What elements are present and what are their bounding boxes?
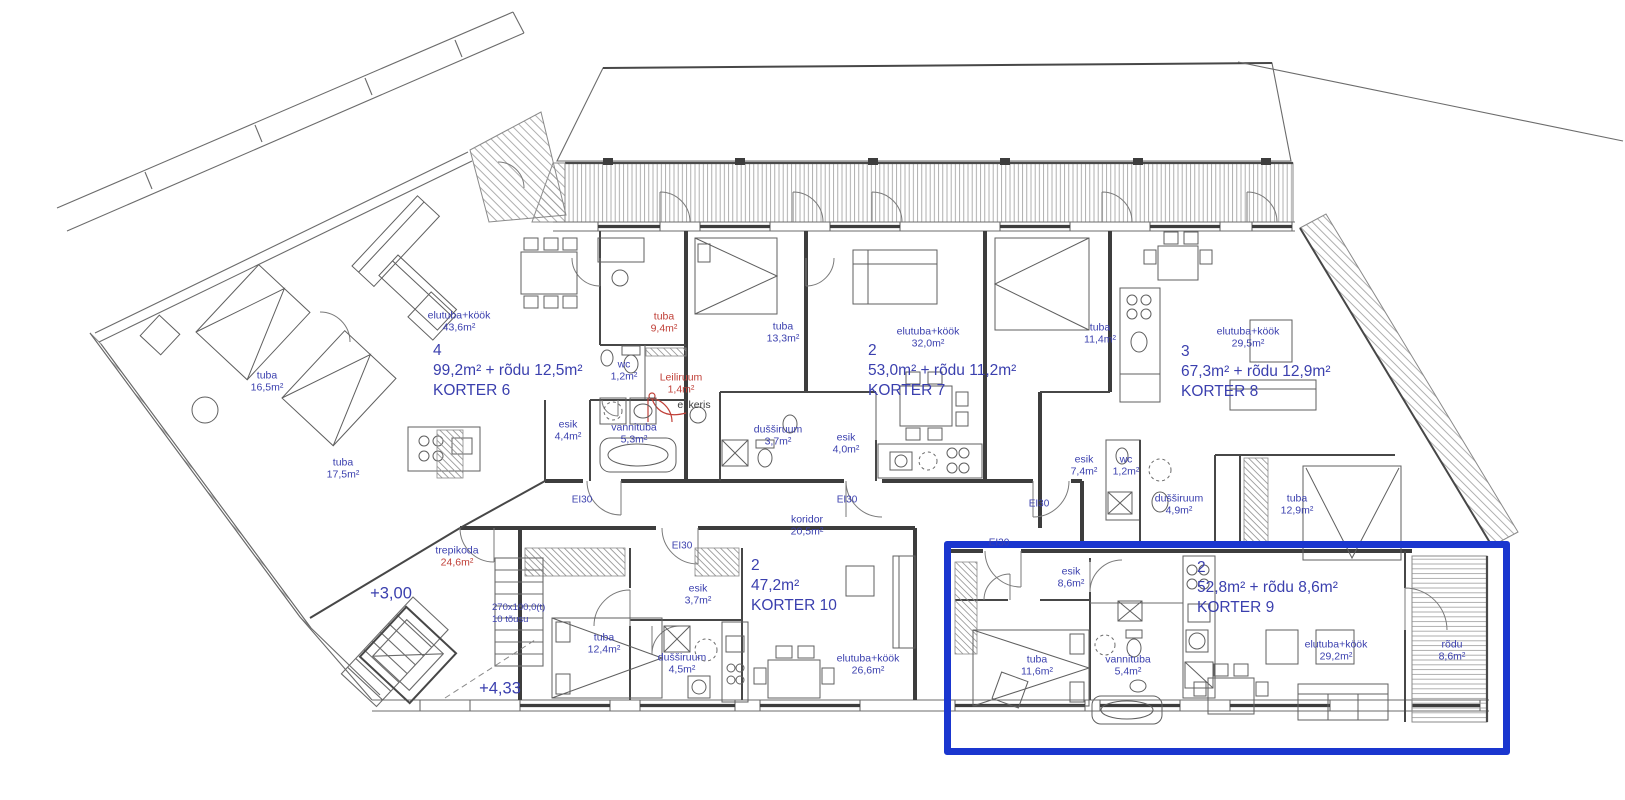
room-label: tuba12,4m² (588, 632, 621, 657)
dining-table-icon (521, 238, 577, 308)
corner-terrace (470, 112, 566, 222)
room-label: Leiliruum1,4m² (660, 372, 703, 397)
room-label: tuba11,6m² (1021, 654, 1053, 679)
room-label: trepikoda24,6m² (435, 545, 478, 570)
stair-note: 270x100,0(t)10 tõusu (492, 602, 545, 626)
apartment-label-korter-9: 252,8m² + rõdu 8,6m²KORTER 9 (1197, 558, 1338, 617)
room-label: esik4,0m² (833, 432, 860, 457)
bed-icon (695, 238, 777, 314)
room-label: dušširuum3,7m² (754, 424, 802, 449)
armchair-icon (846, 566, 874, 596)
room-label: tuba12,9m² (1281, 493, 1314, 518)
floor-plan-page: elutuba+köök43,6m²tuba16,5m²tuba17,5m²tu… (0, 0, 1625, 800)
table-icon (192, 397, 218, 423)
dining-table-icon (754, 646, 834, 698)
room-label: tuba13,3m² (767, 321, 800, 346)
dining-table-icon (1144, 232, 1212, 280)
fire-rating-label: EI30 (572, 495, 593, 506)
fire-rating-label: EI30 (837, 495, 858, 506)
desk-icon (598, 238, 644, 262)
room-label: wc1,2m² (1113, 454, 1140, 479)
room-label: vannituba5,4m² (1105, 654, 1151, 679)
level-label: +3,00 (370, 585, 412, 604)
furniture-korter6 (140, 196, 676, 478)
bed-icon (196, 265, 310, 380)
room-label: koridor20,5m² (791, 514, 824, 539)
fire-rating-label: EI30 (1029, 499, 1050, 510)
apartment-label-korter-10: 247,2m²KORTER 10 (751, 556, 837, 615)
room-label: tuba17,5m² (327, 457, 360, 482)
room-label: el keris (677, 399, 710, 411)
sofa-icon (893, 556, 915, 648)
elevator (360, 607, 456, 703)
kitchen-counter (722, 622, 748, 702)
sofa-icon (853, 250, 937, 304)
room-label: vannituba5,3m² (611, 422, 657, 447)
room-label: tuba9,4m² (651, 311, 678, 336)
bed-icon (282, 331, 396, 446)
room-label: wc1,2m² (611, 359, 638, 384)
room-label: rõdu8,6m² (1439, 639, 1466, 664)
level-label: +4,33 (479, 680, 521, 699)
apartment-label-korter-6: 499,2m² + rõdu 12,5m²KORTER 6 (433, 341, 582, 400)
bed-icon (552, 618, 662, 698)
fire-rating-label: EI30 (672, 541, 693, 552)
room-label: elutuba+köök43,6m² (428, 310, 491, 335)
room-label: dušširuum4,5m² (658, 652, 706, 677)
bed-icon (995, 238, 1089, 330)
fire-rating-label: EI30 (989, 538, 1010, 549)
room-label: dušširuum4,9m² (1155, 493, 1203, 518)
room-label: esik7,4m² (1071, 454, 1098, 479)
room-label: esik8,6m² (1058, 566, 1085, 591)
room-label: elutuba+köök29,2m² (1305, 639, 1368, 664)
top-balcony (532, 158, 1293, 222)
room-label: esik4,4m² (555, 419, 582, 444)
apartment-label-korter-7: 253,0m² + rõdu 11,2m²KORTER 7 (868, 341, 1016, 400)
room-label: tuba11,4m² (1084, 322, 1116, 347)
room-label: elutuba+köök26,6m² (837, 653, 900, 678)
furniture-korter10 (552, 556, 915, 702)
apartment-label-korter-8: 367,3m² + rõdu 12,9m²KORTER 8 (1181, 342, 1330, 401)
kitchen-counter (1120, 288, 1160, 402)
room-label: tuba16,5m² (251, 370, 284, 395)
room-label: esik3,7m² (685, 583, 712, 608)
kitchen-counter (878, 444, 982, 478)
